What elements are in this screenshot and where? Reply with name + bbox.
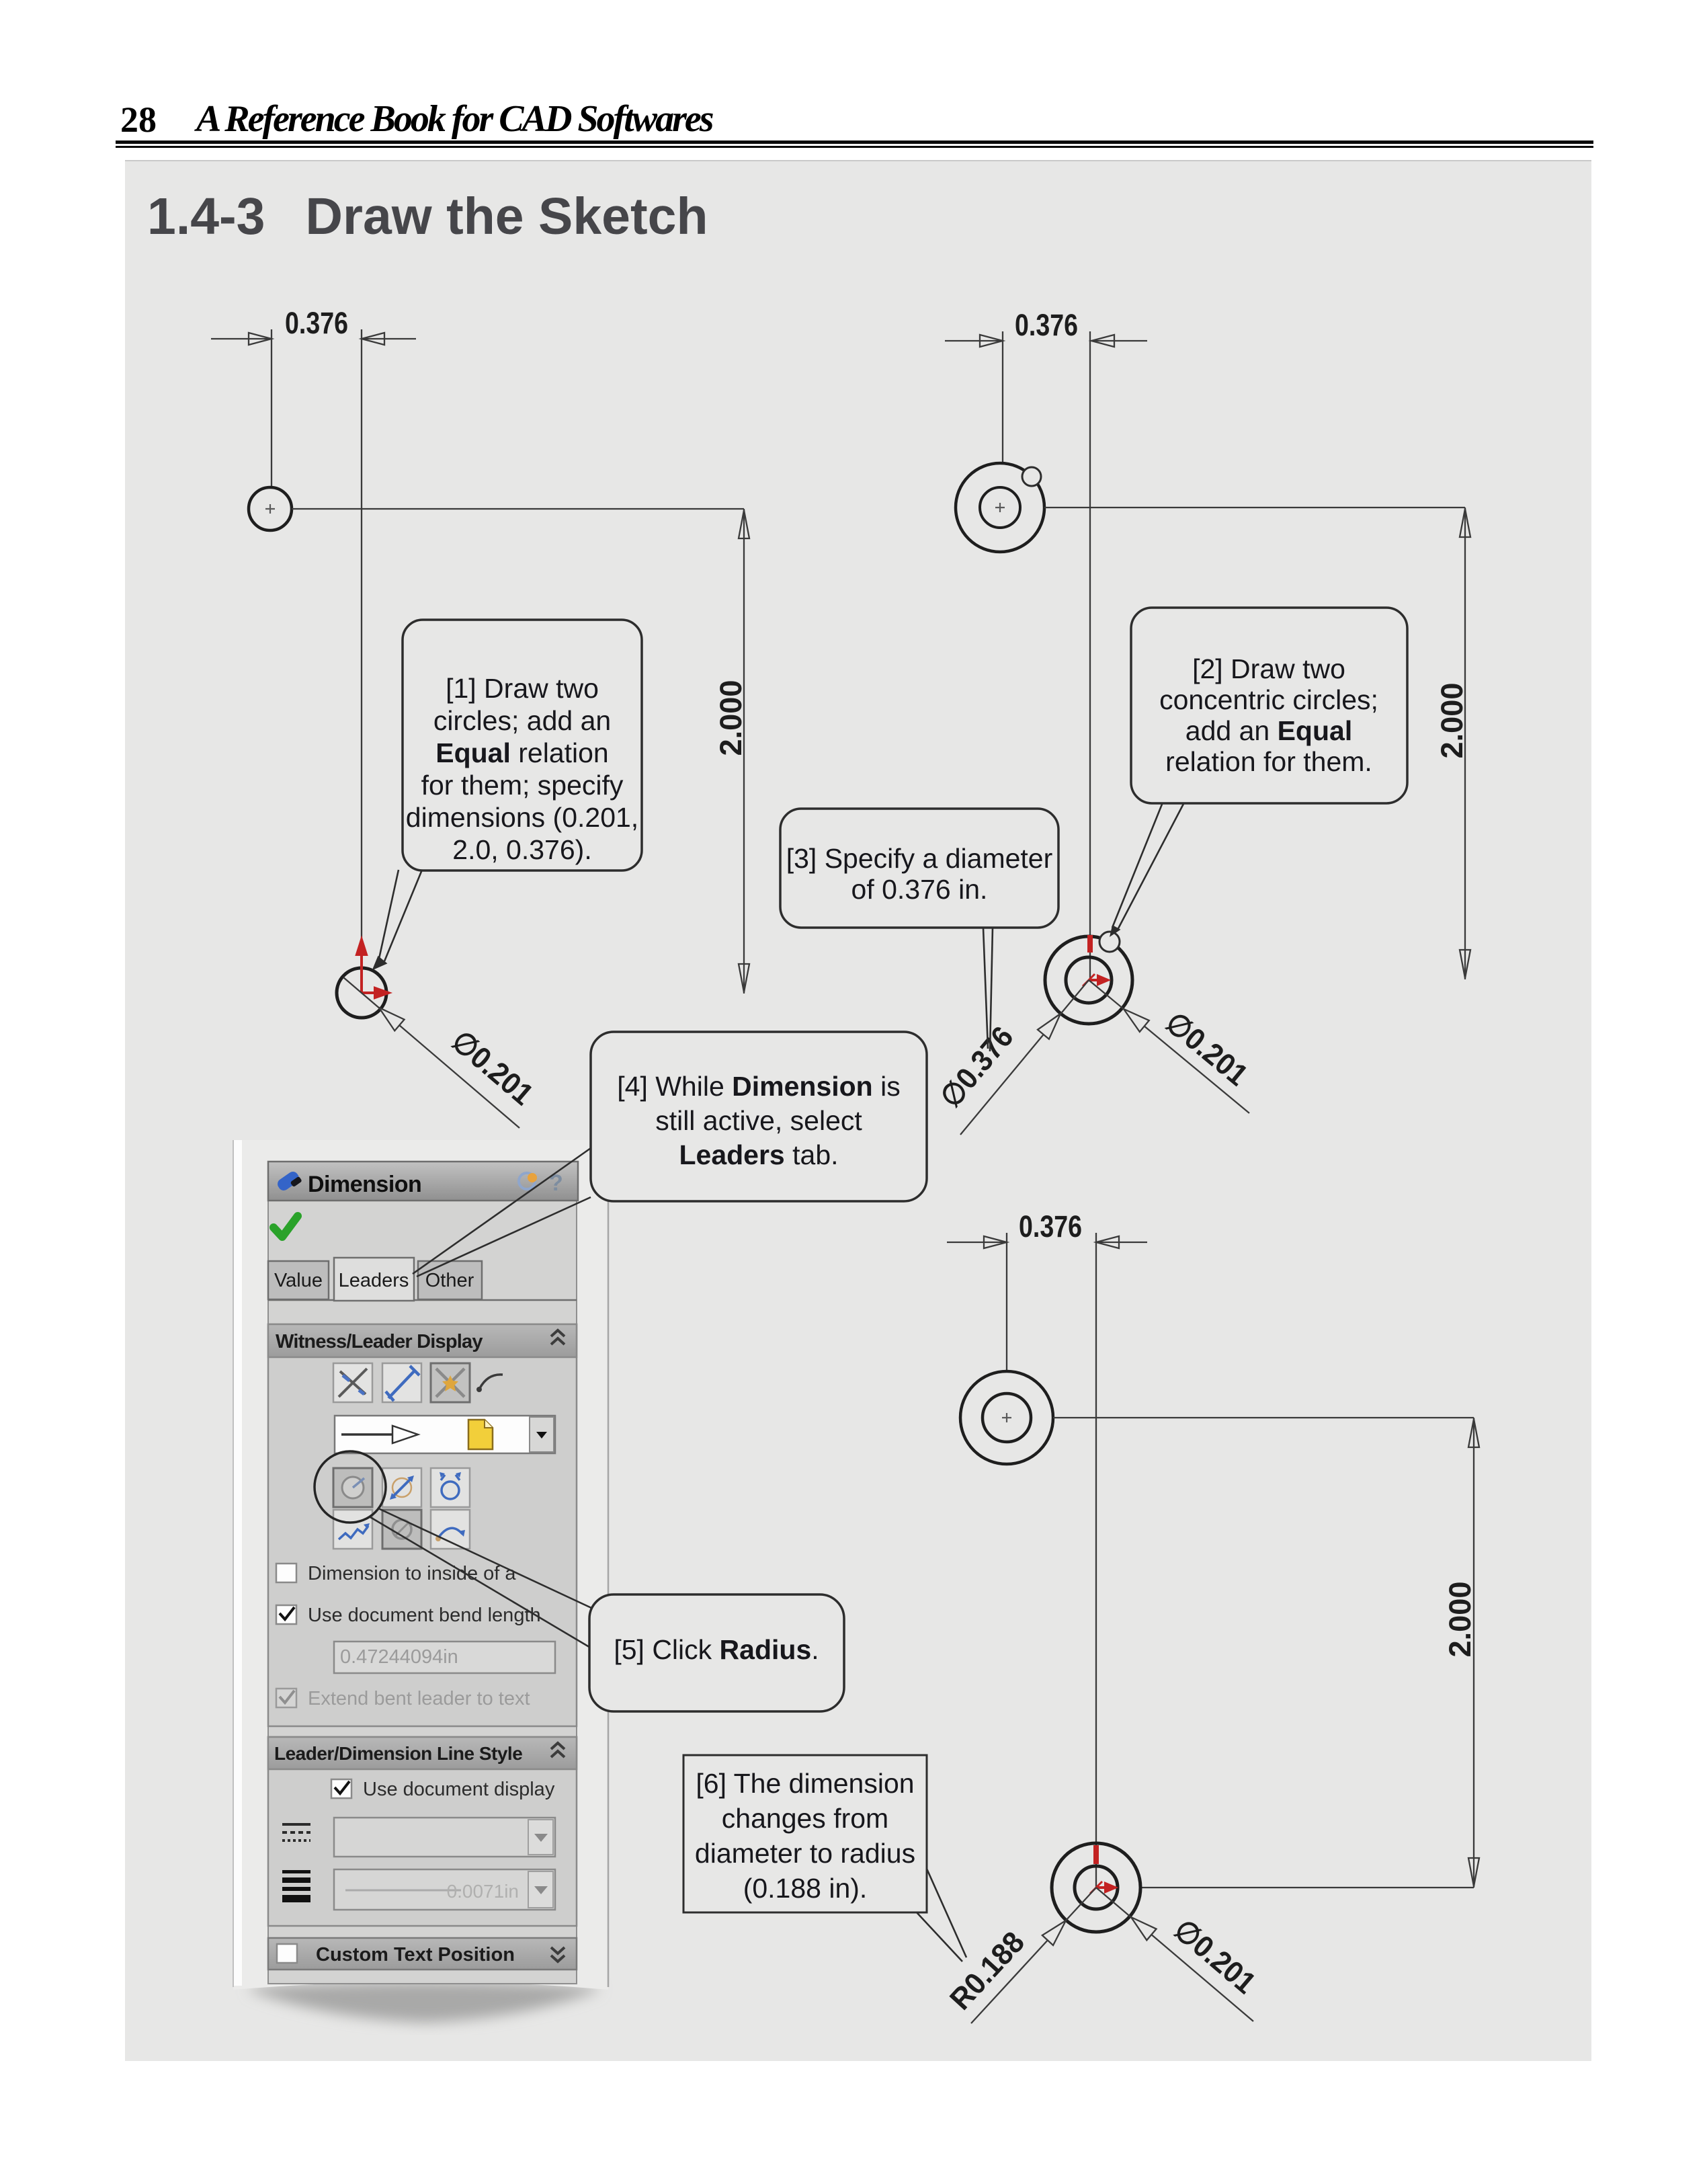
svg-text:Custom Text Position: Custom Text Position xyxy=(316,1944,515,1966)
svg-text:[1] Draw two: [1] Draw two xyxy=(446,673,599,704)
svg-text:diameter to radius: diameter to radius xyxy=(695,1838,915,1869)
svg-text:Witness/Leader Display: Witness/Leader Display xyxy=(276,1331,483,1352)
svg-text:2.000: 2.000 xyxy=(714,680,748,756)
svg-text:0.47244094in: 0.47244094in xyxy=(340,1646,458,1668)
svg-text:∅0.201: ∅0.201 xyxy=(1159,1005,1255,1092)
svg-text:of 0.376 in.: of 0.376 in. xyxy=(851,874,988,905)
svg-text:2.000: 2.000 xyxy=(1443,1582,1477,1658)
svg-text:Value: Value xyxy=(274,1270,323,1291)
svg-text:0.0071in: 0.0071in xyxy=(447,1881,519,1902)
svg-text:0.376: 0.376 xyxy=(1015,308,1078,342)
svg-text:[5] Click Radius.: [5] Click Radius. xyxy=(614,1634,819,1665)
svg-text:Equal relation: Equal relation xyxy=(435,737,609,768)
svg-text:∅0.201: ∅0.201 xyxy=(446,1024,540,1112)
svg-text:still active, select: still active, select xyxy=(655,1105,862,1136)
svg-text:for them; specify: for them; specify xyxy=(421,770,624,801)
svg-text:Leaders tab.: Leaders tab. xyxy=(679,1139,838,1170)
svg-text:2.0, 0.376).: 2.0, 0.376). xyxy=(452,834,591,865)
svg-text:0.376: 0.376 xyxy=(1019,1209,1082,1244)
svg-text:∅0.376: ∅0.376 xyxy=(933,1020,1020,1114)
svg-text:1.4-3 Draw the Sketch: 1.4-3 Draw the Sketch xyxy=(147,188,708,245)
svg-text:[6] The dimension: [6] The dimension xyxy=(696,1768,914,1799)
svg-text:Leader/Dimension Line Style: Leader/Dimension Line Style xyxy=(274,1743,522,1764)
svg-text:dimensions (0.201,: dimensions (0.201, xyxy=(406,802,638,833)
svg-text:Use document display: Use document display xyxy=(363,1779,555,1800)
svg-text:0.376: 0.376 xyxy=(285,306,348,340)
svg-text:relation for them.: relation for them. xyxy=(1165,746,1372,777)
svg-text:2.000: 2.000 xyxy=(1435,683,1469,759)
svg-text:Dimension to inside of a: Dimension to inside of a xyxy=(308,1563,516,1584)
svg-text:Extend bent leader to text: Extend bent leader to text xyxy=(308,1688,530,1709)
svg-text:[4] While Dimension is: [4] While Dimension is xyxy=(617,1071,900,1102)
svg-text:[3] Specify a diameter: [3] Specify a diameter xyxy=(786,843,1053,874)
svg-text:[2] Draw two: [2] Draw two xyxy=(1192,653,1345,684)
svg-text:Use document bend length: Use document bend length xyxy=(308,1605,541,1626)
svg-text:∅0.201: ∅0.201 xyxy=(1167,1912,1262,2000)
svg-text:concentric circles;: concentric circles; xyxy=(1159,684,1378,715)
svg-text:add an Equal: add an Equal xyxy=(1185,715,1352,746)
svg-text:R0.188: R0.188 xyxy=(943,1925,1031,2016)
svg-text:Leaders: Leaders xyxy=(339,1270,409,1291)
svg-text:circles; add an: circles; add an xyxy=(433,705,611,736)
svg-text:changes from: changes from xyxy=(722,1803,888,1834)
svg-text:?: ? xyxy=(549,1170,563,1196)
svg-text:Dimension: Dimension xyxy=(308,1172,421,1197)
svg-text:Other: Other xyxy=(425,1270,474,1291)
svg-text:(0.188 in).: (0.188 in). xyxy=(743,1873,868,1904)
